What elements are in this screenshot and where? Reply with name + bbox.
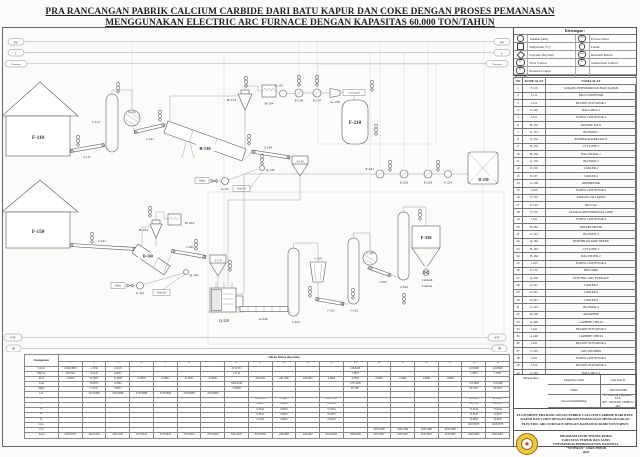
listrik-pill-right: L — [501, 52, 503, 55]
equipment-cell: J-139 — [523, 187, 546, 194]
institution-line-5: 2023 — [538, 450, 634, 454]
equipment-row: 12E-136COOLER-1 — [514, 165, 637, 172]
equipment-row: 17F-140BIN CaO — [514, 202, 637, 209]
e137-label: E-137 — [313, 99, 322, 103]
equipment-row: 10H-134BAG FILTER-1 — [514, 151, 637, 158]
calcium-label: Calcium — [422, 278, 433, 282]
stream-cell: 7496.8599 — [343, 433, 367, 439]
dosen-value: Ir. Caecilia Pujiastuti, M.T. NIP. 19630… — [601, 395, 636, 408]
screw-conveyor-j141: J-141 — [70, 239, 136, 251]
legend-symbol-cell — [514, 43, 528, 50]
sheet-title: PRA RANCANGAN PABRIK CALCIUM CARBIDE DAR… — [20, 7, 580, 28]
equipment-cell: 34 — [514, 326, 523, 333]
stream-cell: 4755.6623 — [130, 433, 154, 439]
g135-label: G-135 — [275, 84, 283, 88]
stream-cell: 2435.2807 — [367, 433, 391, 439]
equipment-cell: BIN CaO — [546, 202, 637, 209]
equipment-cell: GUDANG PENYIMPANAN BATU KAPUR — [546, 85, 637, 92]
equipment-header-row: NO KODE ALAT NAMA ALAT — [514, 78, 637, 85]
equipment-cell: BAG FILTER-2 — [546, 253, 637, 260]
equipment-cell: BELT CONVEYOR — [546, 92, 637, 99]
equipment-cell: 28 — [514, 282, 523, 289]
q220-label: Q-220 — [219, 318, 229, 323]
j312-label: J-312 — [350, 309, 358, 313]
equipment-cell: 15 — [514, 187, 523, 194]
equipment-cell: ABSORBER — [546, 311, 637, 318]
equipment-cell: G-161 — [523, 231, 546, 238]
stream-cell: 4818.2594 — [82, 433, 106, 439]
equipment-row: 7G-131BLOWER-1 — [514, 129, 637, 136]
legend: Keterangan : Tekanan (atm)PWProcess Wate… — [513, 27, 637, 76]
equipment-cell: 1 — [514, 85, 523, 92]
f110-label: F-110 — [32, 136, 44, 141]
equipment-row: 24H-164BAG FILTER-2 — [514, 253, 637, 260]
screw-conveyor-j321: J-321 — [368, 266, 391, 284]
j321-label: J-321 — [379, 280, 387, 284]
legend-label: Laju Alir (Kg/Jam) — [528, 51, 576, 58]
udara-label-1: Udara — [199, 180, 206, 183]
stream-table-wrap: KomponenAliran Massa (Kg/Jam)12345678910… — [24, 354, 510, 439]
stream-cell: 4755.6623 — [153, 433, 177, 439]
equipment-cell: 37 — [514, 348, 523, 355]
g224-label: G-224 — [444, 181, 452, 185]
dowterm-pill-right: Dowterm — [492, 63, 501, 66]
equipment-cell: H-163 — [523, 245, 546, 252]
equipment-row: 18F-150GUDANG PENYIMPANAN COKE — [514, 209, 637, 216]
equipment-cell: J-311 — [523, 355, 546, 362]
stream-cell: 11078.0537 — [59, 433, 83, 439]
equipment-row: 21G-161BLOWER-3 — [514, 231, 637, 238]
equipment-row: 5J-121SCREW CONVEYOR-1 — [514, 114, 637, 121]
udara-label-2: Udara — [115, 285, 122, 288]
equipment-cell: 18 — [514, 209, 523, 216]
equipment-cell: COOLER-1 — [546, 165, 637, 172]
equipment-cell: Q-220 — [523, 275, 546, 282]
equipment-cell: 10 — [514, 151, 523, 158]
absorber-d230: D-230 — [468, 152, 498, 184]
equipment-row: 19J-141SCREW CONVEYOR-3 — [514, 216, 637, 223]
dosen-nip: NIP. 19630305 198803 2 001 — [602, 401, 635, 408]
digambar-value: Ade Nandy — [601, 375, 636, 385]
equipment-row: 31G-224BLOWER-4 — [514, 304, 637, 311]
equipment-cell: BIN COKE — [546, 267, 637, 274]
legend-label: Tekanan (atm) — [528, 35, 576, 42]
pw-pill-left: PW — [14, 41, 19, 44]
equipment-cell: Q-132 — [523, 136, 546, 143]
equipment-cell: C-310 — [523, 348, 546, 355]
j241-label: J-241 — [292, 320, 300, 324]
legend-body: Tekanan (atm)PWProcess WaterTemperatur (… — [514, 35, 636, 82]
c120-label: C-120 — [129, 111, 137, 114]
g161-label: G-161 — [136, 291, 144, 295]
fuel-oil-label-1: Fuel Oil — [237, 188, 246, 191]
equipment-cell: J-241 — [523, 326, 546, 333]
bin-f170: F-170 — [210, 255, 226, 288]
listrik-pill-left: L — [15, 52, 17, 55]
jaw-crusher-c310: C-310 — [310, 257, 326, 300]
equipment-row: 34J-241BUCKET ELEVATOR-2 — [514, 326, 637, 333]
equipment-cell: J-112 — [523, 99, 546, 106]
title-line-1: PRA RANCANGAN PABRIK CALCIUM CARBIDE DAR… — [20, 7, 580, 18]
equipment-cell: 5 — [514, 114, 523, 121]
legend-label: Pressure Control — [528, 67, 576, 74]
pw-pill-right: PW — [500, 41, 505, 44]
tank-f210: F-210 — [342, 100, 368, 144]
e136-label: E-136 — [295, 99, 304, 103]
equipment-row: 26F-170BIN COKE — [514, 267, 637, 274]
legend-label: Temperature Control — [590, 59, 637, 66]
legend-symbol-cell: PC — [514, 67, 528, 74]
stream-row-label: Total — [25, 433, 59, 439]
legend-symbol-cell — [514, 35, 528, 42]
dowterm-pill-left: Dowterm — [11, 63, 20, 66]
legend-symbol-cell — [514, 51, 528, 58]
screw-conveyor-j139: J-139 — [244, 146, 290, 161]
legend-symbol-cell — [576, 67, 590, 74]
equipment-header-kode: KODE ALAT — [523, 78, 546, 85]
npm-value: 20031010088 — [601, 385, 636, 395]
equipment-cell: JAW CRUSHER — [546, 348, 637, 355]
legend-label: Dowterm Return — [590, 51, 637, 58]
equipment-row: 29E-222COOLER-4 — [514, 289, 637, 296]
equipment-cell: H-164 — [523, 253, 546, 260]
rotary-kiln-b130: B-130 — [164, 121, 246, 161]
equipment-cell: BLOWER-1 — [546, 129, 637, 136]
stream-cell: 4761.2841 — [106, 433, 130, 439]
stream-corner-header: Komponen — [25, 355, 59, 367]
screw-conveyor-j165: J-165 — [164, 245, 206, 272]
fuel-oil-label-2: Fuel Oil — [157, 292, 166, 295]
equipment-cell: TANGKI CO2 LIQUID — [546, 194, 637, 201]
g131-label: G-131 — [221, 187, 229, 191]
process-flow-diagram: PW L Dowterm PW L Dowterm WTP DR WTP DR … — [2, 27, 511, 352]
screw-conveyor-j311: J-311 — [316, 298, 349, 313]
equipment-cell: 26 — [514, 267, 523, 274]
bucket-elevator-j241: J-241 — [288, 243, 318, 324]
e223-label: E-223 — [424, 181, 433, 185]
equipment-row: 27Q-220ELECTRIC ARC FURNACE — [514, 275, 637, 282]
stream-cell: 6014.9394 — [320, 433, 344, 439]
equipment-cell: COOLER-4 — [546, 289, 637, 296]
legend-label — [590, 67, 637, 74]
equipment-row: 33A-240CARBIDE CHILLS — [514, 318, 637, 325]
equipment-cell: 35 — [514, 333, 523, 340]
equipment-row: 13E-137COOLER-2 — [514, 172, 637, 179]
equipment-cell: 3 — [514, 99, 523, 106]
equipment-cell: SCREW CONVEYOR-2 — [546, 187, 637, 194]
equipment-cell: 25 — [514, 260, 523, 267]
equipment-cell: J-165 — [523, 260, 546, 267]
equipment-cell: BUCKET ELEVATOR-2 — [546, 340, 637, 347]
dryer-firing: Udara G-161 Fuel Oil Q-162 — [111, 270, 199, 296]
equipment-cell: E-137 — [523, 172, 546, 179]
legend-row: Temperatur (°C)LListrik — [514, 43, 636, 51]
equipment-cell: F-210 — [523, 194, 546, 201]
equipment-cell: 22 — [514, 238, 523, 245]
equipment-cell: GUDANG PENYIMPANAN COKE — [546, 209, 637, 216]
equipment-cell: 16 — [514, 194, 523, 201]
equipment-row: 3J-112BUCKET ELEVATOR-1 — [514, 99, 637, 106]
blower-g135: G-135 — [275, 84, 295, 98]
co2-liquid-label: CO2 Liquid — [348, 92, 360, 95]
stream-cell: 246.1940 — [296, 433, 320, 439]
equipment-row: 11G-135BLOWER-2 — [514, 158, 637, 165]
equipment-cell: BUCKET ELEVATOR-2 — [546, 326, 637, 333]
square-symbol-icon — [517, 43, 524, 50]
equipment-cell: COOLER-3 — [546, 282, 637, 289]
equipment-row: 28E-221COOLER-3 — [514, 282, 637, 289]
legend-row: FCFlow ControlTCTemperature Control — [514, 59, 636, 67]
electric-arc-furnace-q220: Q-220 — [208, 282, 245, 323]
equipment-cell: 21 — [514, 231, 523, 238]
equipment-cell: E-223 — [523, 297, 546, 304]
equipment-cell: A-240 — [523, 333, 546, 340]
equipment-cell: 11 — [514, 158, 523, 165]
legend-label: Temperatur (°C) — [528, 43, 576, 50]
carbide-label: Carbide — [422, 284, 433, 288]
equipment-row: 4C-120BALL MILL-1 — [514, 107, 637, 114]
npm-label: NPM — [548, 385, 601, 395]
j121-label: J-121 — [146, 137, 154, 141]
warehouse-f150: F-150 — [2, 180, 78, 248]
equipment-cell: 31 — [514, 304, 523, 311]
equipment-row: 2J-111BELT CONVEYOR — [514, 92, 637, 99]
equipment-row: 39J-312BUCKET ELEVATOR-3 — [514, 362, 637, 369]
equipment-cell: SCREW CONVEYOR-3 — [546, 216, 637, 223]
legend-symbol-cell: FC — [514, 59, 528, 66]
wtp-pill-left: WTP — [10, 337, 16, 340]
equipment-cell: 20 — [514, 224, 523, 231]
f150-label: F-150 — [32, 230, 45, 235]
g138-label: G-138 — [331, 100, 340, 104]
d230-label: D-230 — [478, 177, 488, 182]
indicator-clusters — [76, 75, 439, 304]
equipment-cell: B-160 — [523, 224, 546, 231]
equipment-cell: COOLER-5 — [546, 297, 637, 304]
equipment-cell: ELECTRIC ARC FURNACE — [546, 275, 637, 282]
equipment-cell: ROTARY KILN — [546, 121, 637, 128]
equipment-row: 20B-160ROTARY DRYER — [514, 224, 637, 231]
equipment-cell: 23 — [514, 245, 523, 252]
logo-star-icon: ★ — [521, 438, 533, 450]
f210-label: F-210 — [349, 121, 362, 126]
legend-label: Process Water — [590, 35, 637, 42]
equipment-cell: G-135 — [523, 158, 546, 165]
j322-label: J-322 — [400, 285, 408, 289]
equipment-cell: BLOWER-4 — [546, 304, 637, 311]
equipment-cell: BUCKET ELEVATOR-3 — [546, 362, 637, 369]
belt-conveyor-j111: J-111 — [70, 144, 105, 160]
cyclone-h163: H-163 — [139, 220, 162, 246]
equipment-row: 37C-310JAW CRUSHER — [514, 348, 637, 355]
equipment-cell: 6 — [514, 121, 523, 128]
kiln-firing: Udara G-131 Fuel Oil Q-132 — [195, 166, 275, 192]
equipment-cell: ROTARY DRYER — [546, 224, 637, 231]
q132-label: Q-132 — [266, 168, 275, 172]
legend-row: Tekanan (atm)PWProcess Water — [514, 35, 636, 43]
equipment-cell: 2 — [514, 92, 523, 99]
equipment-cell: D-230 — [523, 311, 546, 318]
h163-label: H-163 — [139, 228, 148, 232]
equipment-header-no: NO — [514, 78, 523, 85]
equipment-cell: G-224 — [523, 304, 546, 311]
legend-code-pill: L — [579, 43, 586, 49]
equipment-header-nama: NAMA ALAT — [546, 78, 637, 85]
h164-label: H-164 — [185, 221, 194, 225]
legend-code-pill: DR — [578, 51, 586, 57]
equipment-cell: CARBIDE CHILLS — [546, 333, 637, 340]
equipment-cell: 14 — [514, 180, 523, 187]
ball-mill-c120: C-120 — [124, 110, 140, 126]
legend-code-pill: PC — [516, 67, 524, 73]
rotary-dryer-b160: B-160 — [132, 244, 170, 275]
stream-cell: 4755.6623 — [201, 433, 225, 439]
equipment-cell: 19 — [514, 216, 523, 223]
equipment-cell: 12 — [514, 165, 523, 172]
equipment-cell: A-240 — [523, 318, 546, 325]
equipment-cell: BLOWER-3 — [546, 231, 637, 238]
legend-code-pill: FC — [516, 59, 524, 65]
stream-cell: 6191.0237 — [225, 433, 249, 439]
equipment-cell: 32 — [514, 311, 523, 318]
stream-cell: 6135.8384 — [248, 433, 272, 439]
equipment-row: 32D-230ABSORBER — [514, 311, 637, 318]
equipment-cell: COOLER-2 — [546, 172, 637, 179]
equipment-cell: 33 — [514, 318, 523, 325]
h133-label: H-133 — [227, 98, 236, 102]
q162-label: Q-162 — [190, 273, 199, 277]
legend-symbol-cell: TC — [576, 59, 590, 66]
equipment-cell: G-131 — [523, 129, 546, 136]
legend-symbol-cell: PW — [576, 35, 590, 42]
institution-text: PROGRAM STUDI TEKNIK KIMIA FAKULTAS TEKN… — [538, 434, 634, 455]
equipment-row: 6B-130ROTARY KILN — [514, 121, 637, 128]
title-block: Digambar Oleh Ade Nandy Mengetahui NPM 2… — [513, 374, 637, 447]
equipment-cell: 13 — [514, 172, 523, 179]
equipment-cell: 9 — [514, 143, 523, 150]
c310-label: C-310 — [314, 257, 322, 261]
equipment-cell: CYCLONE-1 — [546, 143, 637, 150]
j311-label: J-311 — [327, 309, 335, 313]
equipment-cell: KOMPRESOR — [546, 180, 637, 187]
legend-symbol-cell: DR — [576, 51, 590, 58]
b160-label: B-160 — [143, 254, 153, 259]
mengetahui-label: Mengetahui — [514, 375, 548, 408]
a240-label: A-240 — [259, 317, 268, 321]
stream-row: Total11078.05374818.25944761.28414755.66… — [25, 433, 510, 439]
equipment-cell: 4 — [514, 107, 523, 114]
equipment-cell: BUCKET ELEVATOR-1 — [546, 99, 637, 106]
equipment-cell: B-130 — [523, 121, 546, 128]
legend-code-pill: PW — [578, 35, 587, 41]
equipment-row: 15J-139SCREW CONVEYOR-2 — [514, 187, 637, 194]
f330-label: F-330 — [421, 235, 433, 240]
e221-label: E-221 — [365, 167, 374, 171]
equipment-cell: 36 — [514, 340, 523, 347]
j111-label: J-111 — [83, 155, 91, 159]
equipment-cell: 39 — [514, 362, 523, 369]
circle-symbol-icon — [517, 35, 524, 42]
f140-label: F-140 — [297, 161, 304, 164]
equipment-table: NO KODE ALAT NAMA ALAT 1F-110GUDANG PENY… — [513, 77, 637, 374]
equipment-cell: CYCLONE-2 — [546, 245, 637, 252]
equipment-row: 38J-311SCREW CONVEYOR-5 — [514, 355, 637, 362]
dr-pill-left: DR — [12, 348, 16, 351]
dr-pill-right: DR — [498, 348, 502, 351]
legend-title: Keterangan : — [514, 28, 636, 35]
cooler-e136: E-136 — [295, 89, 313, 103]
equipment-cell: BALL MILL-1 — [546, 107, 637, 114]
equipment-cell: E-221 — [523, 282, 546, 289]
legend-row: PCPressure Control — [514, 67, 636, 75]
equipment-cell: J-111 — [523, 92, 546, 99]
j165-label: J-165 — [186, 245, 194, 249]
equipment-row: 23H-163CYCLONE-2 — [514, 245, 637, 252]
equipment-cell: 38 — [514, 355, 523, 362]
equipment-row: 22Q-162BURNER ROTARY DRYER — [514, 238, 637, 245]
equipment-cell: 30 — [514, 297, 523, 304]
j139-label: J-139 — [264, 146, 272, 150]
equipment-cell: J-141 — [523, 216, 546, 223]
equipment-cell: H-134 — [523, 151, 546, 158]
flowsheet-caption: FLOWSHEET PRA RANCANGAN PABRIK CALCIUM C… — [514, 409, 636, 431]
j141-label: J-141 — [98, 239, 106, 243]
equipment-cell: F-170 — [523, 267, 546, 274]
equipment-cell: SCREW CONVEYOR-1 — [546, 114, 637, 121]
equipment-row: 8Q-132BURNER ROTARY KILN — [514, 136, 637, 143]
f170-label: F-170 — [215, 260, 222, 263]
equipment-row: 36J-241BUCKET ELEVATOR-2 — [514, 340, 637, 347]
equipment-row: 35A-240CARBIDE CHILLS — [514, 333, 637, 340]
legend-label: Listrik — [590, 43, 637, 50]
equipment-cell: 17 — [514, 202, 523, 209]
equipment-cell: 8 — [514, 136, 523, 143]
equipment-cell: G-138 — [523, 180, 546, 187]
equipment-cell: BAG FILTER-1 — [546, 151, 637, 158]
b130-label: B-130 — [199, 146, 211, 151]
bag-filter-h164: H-164 — [156, 212, 194, 225]
equipment-cell: BLOWER-2 — [546, 158, 637, 165]
wtp-pill-right: WTP — [494, 337, 500, 340]
dosen-label: Dosen Pembimbing — [548, 395, 601, 408]
equipment-cell: 24 — [514, 253, 523, 260]
equipment-row: 1F-110GUDANG PENYIMPANAN BATU KAPUR — [514, 85, 637, 92]
ball-mill-c320: C-320 — [363, 251, 377, 265]
equipment-cell: C-120 — [523, 107, 546, 114]
screw-conveyor-j121: J-121 — [132, 124, 165, 142]
equipment-cell: 7 — [514, 129, 523, 136]
legend-code-pill: TC — [578, 59, 586, 65]
equipment-cell: F-140 — [523, 202, 546, 209]
stream-cell: 2435.2807 — [391, 433, 415, 439]
equipment-cell: Q-162 — [523, 238, 546, 245]
e222-label: E-222 — [400, 181, 409, 185]
equipment-table-body: 1F-110GUDANG PENYIMPANAN BATU KAPUR2J-11… — [514, 85, 637, 399]
equipment-cell: J-121 — [523, 114, 546, 121]
bucket-elevator-j312: J-312 — [348, 233, 370, 313]
equipment-row: 14G-138KOMPRESOR — [514, 180, 637, 187]
equipment-cell: E-136 — [523, 165, 546, 172]
carbide-chills-a240: A-240 — [236, 307, 288, 322]
legend-label: Flow Control — [528, 59, 576, 66]
j112-label: J-112 — [92, 120, 100, 124]
equipment-cell: BURNER ROTARY KILN — [546, 136, 637, 143]
stream-cell: 8420.0003 — [486, 433, 510, 439]
digambar-label: Digambar Oleh — [548, 375, 601, 385]
diamond-symbol-icon — [516, 50, 524, 58]
equipment-row: 16F-210TANGKI CO2 LIQUID — [514, 194, 637, 201]
equipment-cell: F-110 — [523, 85, 546, 92]
